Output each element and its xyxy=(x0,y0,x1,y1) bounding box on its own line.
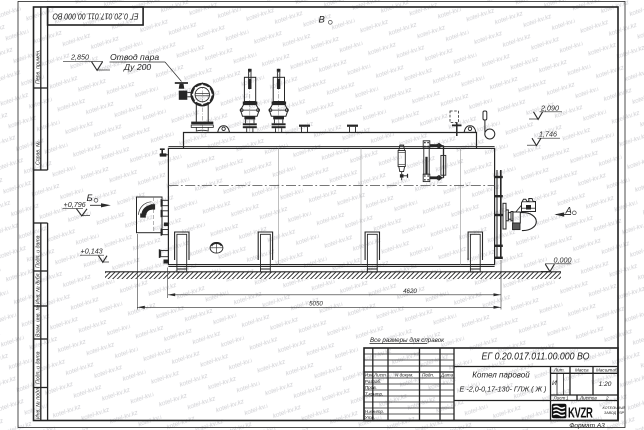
svg-text:Инв. № подл.: Инв. № подл. xyxy=(36,387,42,419)
svg-text:2: 2 xyxy=(605,395,609,400)
svg-text:Листов: Листов xyxy=(579,395,597,400)
svg-text:Дата: Дата xyxy=(440,373,454,378)
svg-text:Котел паровой: Котел паровой xyxy=(472,371,530,380)
svg-text:В: В xyxy=(319,15,326,26)
svg-text:И: И xyxy=(552,380,557,387)
svg-text:Масса: Масса xyxy=(575,368,589,373)
svg-text:ЗАВОД РЗР: ЗАВОД РЗР xyxy=(604,411,625,415)
svg-text:ЕГ 0.20.017.011.00.000 ВО: ЕГ 0.20.017.011.00.000 ВО xyxy=(482,351,590,362)
svg-text:Все размеры для справок: Все размеры для справок xyxy=(370,337,445,344)
svg-text:Взам. инв. №: Взам. инв. № xyxy=(36,305,42,337)
svg-text:Разраб.: Разраб. xyxy=(365,379,382,384)
svg-text:Ду 200: Ду 200 xyxy=(123,62,151,72)
svg-text:Подп. и дата: Подп. и дата xyxy=(36,351,42,384)
svg-text:+0,143: +0,143 xyxy=(81,247,103,256)
svg-text:N докум.: N докум. xyxy=(395,373,414,378)
svg-text:Подп. и дата: Подп. и дата xyxy=(36,235,42,268)
svg-text:Отвод пара: Отвод пара xyxy=(110,52,159,62)
svg-text:КОТЕЛЬНЫЙ: КОТЕЛЬНЫЙ xyxy=(603,406,626,410)
svg-text:4620: 4620 xyxy=(403,288,417,295)
svg-text:Б: Б xyxy=(87,193,93,204)
svg-text:Пров.: Пров. xyxy=(365,385,377,390)
svg-text:Масштаб: Масштаб xyxy=(596,368,618,373)
svg-text:Лист: Лист xyxy=(373,373,386,378)
svg-text:1: 1 xyxy=(566,395,569,400)
svg-text:Утв.: Утв. xyxy=(365,415,375,420)
svg-text:2,090: 2,090 xyxy=(540,104,559,113)
svg-text:Справ. №: Справ. № xyxy=(36,141,42,165)
svg-text:Лит.: Лит. xyxy=(553,368,565,373)
svg-text:Формат А3: Формат А3 xyxy=(569,423,605,430)
svg-text:+0,796: +0,796 xyxy=(64,200,86,209)
svg-text:Т.контр.: Т.контр. xyxy=(365,391,384,396)
svg-text:Инв. № дубл.: Инв. № дубл. xyxy=(36,272,42,304)
svg-text:Н.контр.: Н.контр. xyxy=(365,409,384,414)
svg-text:5050: 5050 xyxy=(309,301,323,308)
svg-text:Подп.: Подп. xyxy=(422,373,434,378)
svg-text:Е -2,0-0,17-130- ГЛЖ ( Ж ): Е -2,0-0,17-130- ГЛЖ ( Ж ) xyxy=(460,385,547,394)
svg-text:ЕГ 0.20.017.011.00.000 ВО: ЕГ 0.20.017.011.00.000 ВО xyxy=(52,12,138,22)
svg-text:2,850: 2,850 xyxy=(70,53,89,62)
svg-text:KVZR: KVZR xyxy=(568,406,593,422)
svg-text:Перв. примен.: Перв. примен. xyxy=(36,50,42,84)
svg-text:Лист: Лист xyxy=(553,395,566,400)
svg-text:0,000: 0,000 xyxy=(554,256,572,265)
svg-text:1,746: 1,746 xyxy=(539,130,557,139)
svg-text:1:20: 1:20 xyxy=(599,381,612,388)
